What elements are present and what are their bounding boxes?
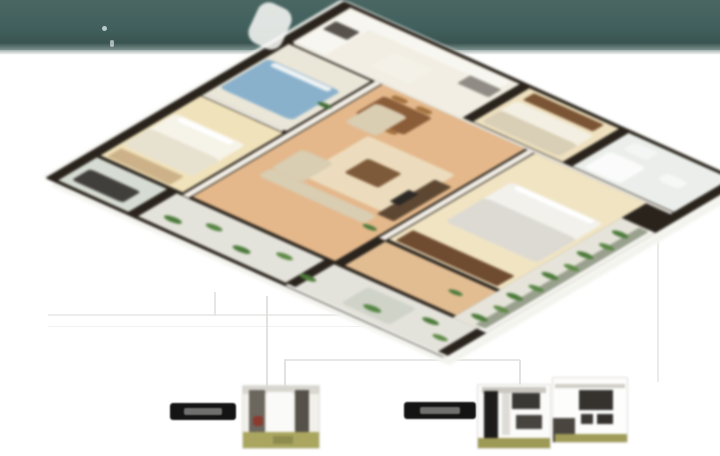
photo-ceiling-line (555, 384, 625, 388)
photo-red-accent (253, 416, 263, 426)
photo-floor-band (555, 434, 627, 442)
photo-dark-pillar (295, 390, 309, 434)
photo-cabinet-right (597, 414, 613, 424)
photo-dark-unit-top (512, 393, 540, 409)
interior-photo-thumbnail-1[interactable] (242, 385, 320, 449)
photo-tv-panel (579, 390, 613, 410)
callout-label-left (170, 403, 236, 420)
label-text-smudge (420, 407, 460, 414)
photo-cabinet-left (581, 414, 593, 424)
photo-dark-unit-bottom (516, 415, 542, 429)
photo-black-cabinet (484, 391, 498, 441)
photo-floor-band (478, 438, 550, 448)
interior-photo-thumbnail-2[interactable] (477, 384, 551, 449)
callout-row (0, 0, 720, 456)
interior-photo-thumbnail-3[interactable] (552, 377, 628, 443)
label-text-smudge (184, 408, 222, 415)
photo-grass-shadow (273, 436, 293, 444)
callout-label-right (404, 402, 476, 419)
photo-wall-panel (502, 393, 510, 435)
page (0, 0, 720, 456)
